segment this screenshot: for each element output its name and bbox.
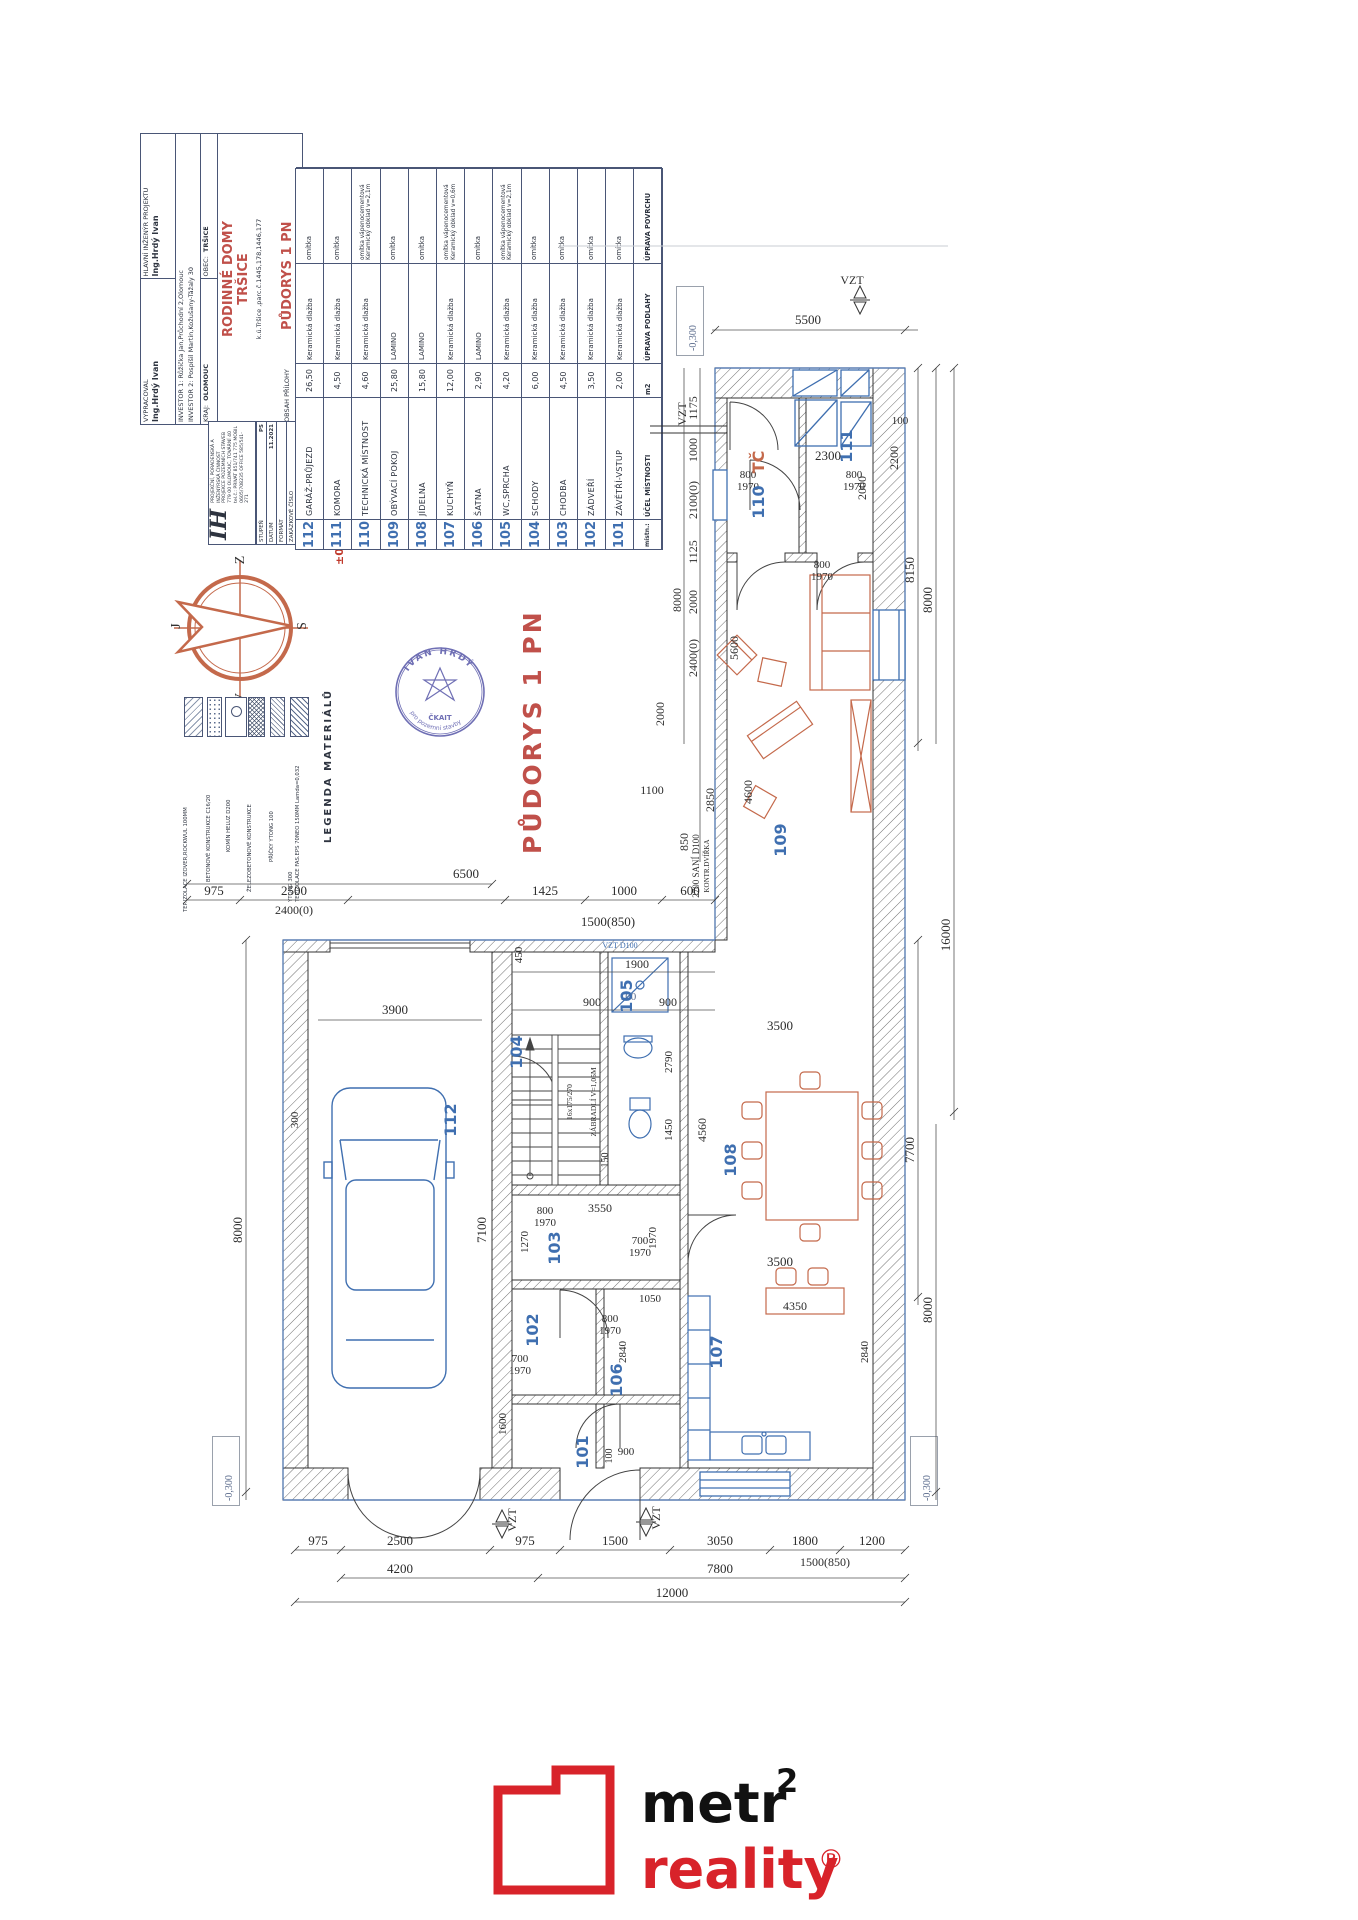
svg-text:3900: 3900 bbox=[382, 1002, 408, 1017]
room-106: 106 bbox=[607, 1363, 626, 1396]
svg-text:900: 900 bbox=[583, 995, 601, 1009]
floor-plan: 5500 8150 8000 16000 7700 8000 975 2500 … bbox=[140, 240, 970, 1620]
svg-text:2400(0): 2400(0) bbox=[686, 639, 700, 677]
svg-text:1000: 1000 bbox=[686, 438, 700, 462]
sani-note: 2700 SANÍ D100 bbox=[691, 834, 701, 898]
svg-text:1970: 1970 bbox=[629, 1247, 652, 1259]
svg-text:4200: 4200 bbox=[387, 1561, 413, 1576]
room-101: 101 bbox=[573, 1435, 592, 1468]
svg-text:1000: 1000 bbox=[611, 883, 637, 898]
dining-set bbox=[742, 1072, 882, 1314]
svg-text:3050: 3050 bbox=[707, 1533, 733, 1548]
heat-pump-label: TČ bbox=[749, 451, 768, 474]
svg-text:850: 850 bbox=[677, 833, 691, 851]
svg-text:16000: 16000 bbox=[938, 919, 953, 952]
room-108: 108 bbox=[721, 1143, 740, 1176]
svg-text:2790: 2790 bbox=[663, 1051, 675, 1074]
svg-text:800: 800 bbox=[814, 559, 831, 571]
svg-text:2840: 2840 bbox=[617, 1341, 629, 1364]
vzt-left: VZT bbox=[675, 402, 689, 426]
svg-text:100: 100 bbox=[604, 1449, 615, 1464]
logo-word2: reality bbox=[641, 1838, 839, 1901]
svg-text:300: 300 bbox=[289, 1111, 301, 1128]
svg-text:3550: 3550 bbox=[588, 1201, 612, 1215]
svg-text:2100(0): 2100(0) bbox=[686, 481, 700, 519]
svg-text:5500: 5500 bbox=[795, 312, 821, 327]
svg-text:1050: 1050 bbox=[639, 1293, 662, 1305]
svg-text:1125: 1125 bbox=[686, 540, 700, 564]
svg-text:2400(0): 2400(0) bbox=[275, 903, 313, 917]
svg-text:2500: 2500 bbox=[281, 883, 307, 898]
svg-text:1970: 1970 bbox=[599, 1325, 622, 1337]
svg-text:1200: 1200 bbox=[859, 1533, 885, 1548]
stair-steps-note: 16x175/270 bbox=[565, 1084, 574, 1120]
svg-text:7100: 7100 bbox=[474, 1217, 489, 1243]
stair-railing-note: ZÁBRADLÍ V=1,05M bbox=[588, 1067, 598, 1136]
kitchen-counters bbox=[688, 1296, 810, 1460]
svg-text:8000: 8000 bbox=[670, 588, 684, 612]
svg-text:3500: 3500 bbox=[767, 1018, 793, 1033]
svg-text:8150: 8150 bbox=[902, 557, 917, 583]
dimension-texts: 5500 8150 8000 16000 7700 8000 975 2500 … bbox=[204, 312, 953, 1600]
svg-text:6500: 6500 bbox=[453, 866, 479, 881]
svg-text:800: 800 bbox=[602, 1313, 619, 1325]
car bbox=[324, 1088, 454, 1388]
svg-text:4350: 4350 bbox=[783, 1299, 807, 1313]
svg-text:975: 975 bbox=[204, 883, 224, 898]
walls-upper-wing bbox=[715, 368, 905, 1500]
room-104: 104 bbox=[507, 1035, 526, 1068]
svg-text:700: 700 bbox=[512, 1353, 529, 1365]
logo-registered: ® bbox=[818, 1845, 844, 1875]
svg-text:1970: 1970 bbox=[811, 571, 834, 583]
svg-text:8000: 8000 bbox=[920, 1297, 935, 1323]
svg-text:1450: 1450 bbox=[663, 1119, 675, 1142]
logo-word1: metr bbox=[641, 1772, 787, 1835]
room-107: 107 bbox=[707, 1335, 726, 1368]
svg-text:1425: 1425 bbox=[532, 883, 558, 898]
svg-text:1900: 1900 bbox=[625, 957, 649, 971]
svg-text:1800: 1800 bbox=[792, 1533, 818, 1548]
vzt-top: VZT bbox=[840, 273, 864, 287]
logo-sup: 2 bbox=[776, 1762, 798, 1800]
svg-text:5600: 5600 bbox=[727, 636, 741, 660]
svg-text:1500(850): 1500(850) bbox=[581, 914, 635, 929]
svg-text:1100: 1100 bbox=[640, 783, 664, 797]
svg-text:2500: 2500 bbox=[387, 1533, 413, 1548]
doors-lower bbox=[330, 943, 736, 1540]
room-102: 102 bbox=[523, 1313, 542, 1346]
svg-text:2840: 2840 bbox=[859, 1341, 871, 1364]
room-103: 103 bbox=[545, 1231, 564, 1264]
svg-text:1270: 1270 bbox=[519, 1231, 531, 1254]
svg-text:7800: 7800 bbox=[707, 1561, 733, 1576]
svg-text:2000: 2000 bbox=[686, 590, 700, 614]
svg-text:900: 900 bbox=[659, 995, 677, 1009]
svg-text:8000: 8000 bbox=[920, 587, 935, 613]
svg-text:900: 900 bbox=[618, 1446, 635, 1458]
room-110: 110 bbox=[749, 485, 768, 518]
metr2-reality-logo: metr 2 reality ® bbox=[478, 1740, 908, 1915]
svg-text:12000: 12000 bbox=[656, 1585, 689, 1600]
svg-text:7700: 7700 bbox=[902, 1137, 917, 1163]
screenshot-canvas: VYPRACOVAL Ing.Hrdý Ivan HLAVNÍ INŽENÝR … bbox=[0, 0, 1358, 1920]
svg-text:1970: 1970 bbox=[534, 1217, 557, 1229]
svg-text:3500: 3500 bbox=[767, 1254, 793, 1269]
vzt-bottom-1: VZT bbox=[505, 1508, 519, 1532]
svg-text:150: 150 bbox=[600, 1153, 611, 1168]
kontr-note: KONTR.DVÍŘKA bbox=[703, 839, 711, 892]
svg-text:800: 800 bbox=[537, 1205, 554, 1217]
svg-text:700: 700 bbox=[632, 1235, 649, 1247]
svg-text:100: 100 bbox=[892, 415, 909, 427]
logo-square bbox=[498, 1770, 610, 1890]
svg-text:1600: 1600 bbox=[497, 1413, 509, 1436]
svg-text:800: 800 bbox=[846, 469, 863, 481]
svg-text:2200: 2200 bbox=[887, 446, 901, 470]
svg-text:2000: 2000 bbox=[653, 702, 667, 726]
room-112: 112 bbox=[441, 1103, 460, 1136]
svg-text:975: 975 bbox=[308, 1533, 328, 1548]
svg-text:2850: 2850 bbox=[703, 788, 717, 812]
bottom-window bbox=[700, 1472, 790, 1496]
svg-text:8000: 8000 bbox=[230, 1217, 245, 1243]
svg-text:1970: 1970 bbox=[509, 1365, 532, 1377]
vzt-bottom-2: VZT bbox=[649, 1506, 663, 1530]
svg-text:4560: 4560 bbox=[695, 1118, 709, 1142]
room-105: 105 bbox=[617, 979, 636, 1012]
svg-text:1970: 1970 bbox=[843, 481, 866, 493]
svg-text:1970: 1970 bbox=[647, 1227, 659, 1250]
svg-text:975: 975 bbox=[515, 1533, 535, 1548]
room-111: 111 bbox=[837, 429, 856, 462]
svg-text:450: 450 bbox=[513, 946, 525, 963]
vzt-d100: VZT D100 bbox=[602, 941, 637, 950]
room-109: 109 bbox=[771, 823, 790, 856]
svg-text:1500(850): 1500(850) bbox=[800, 1555, 850, 1569]
svg-text:1500: 1500 bbox=[602, 1533, 628, 1548]
svg-text:4600: 4600 bbox=[741, 780, 755, 804]
